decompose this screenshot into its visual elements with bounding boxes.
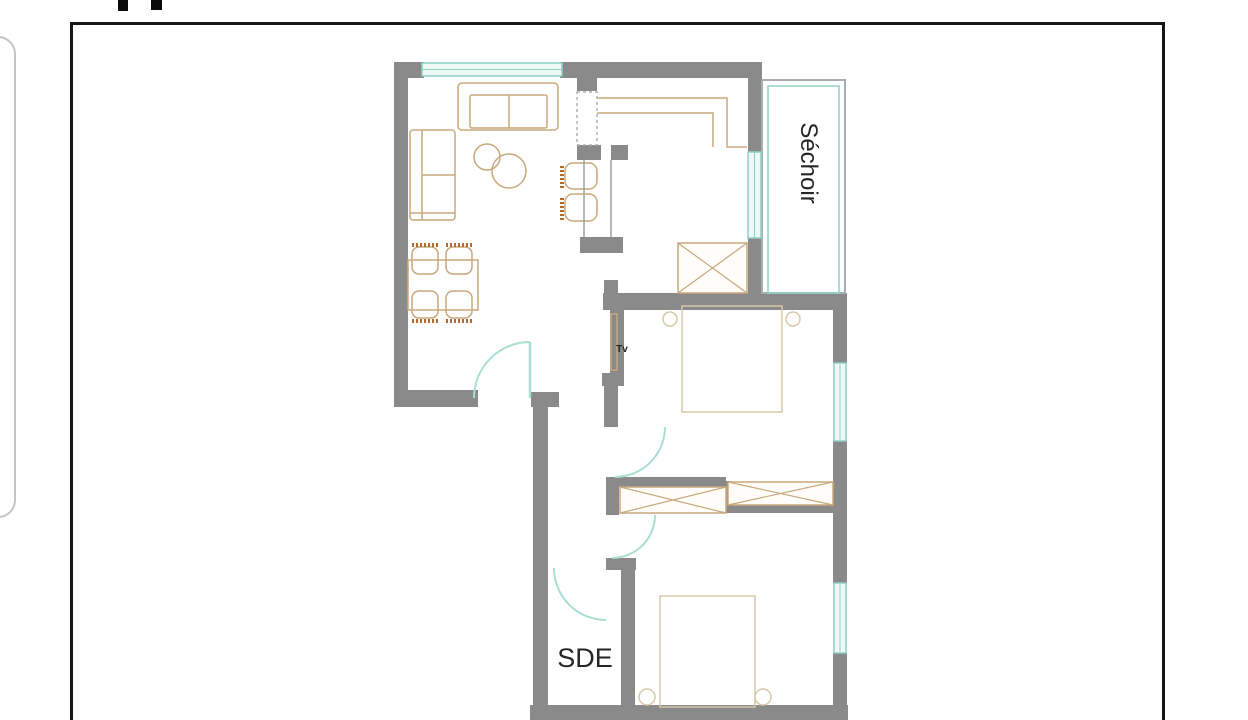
- entry-side-block: [531, 392, 559, 407]
- kitchen-stub-top: [577, 78, 597, 91]
- room-label-sde: SDE: [557, 643, 613, 673]
- corridor-wall-lower: [604, 386, 618, 427]
- bed-2: [660, 596, 755, 707]
- kitchen-block-right: [611, 145, 628, 160]
- right-wall-b: [833, 441, 847, 583]
- room-label-sechoir: Séchoir: [795, 122, 822, 203]
- living-bottom-wall: [398, 390, 478, 407]
- floorplan-svg[interactable]: SéchoirSDETv: [0, 0, 1248, 720]
- bedside-lamp: [663, 312, 677, 326]
- top-left-corner: [394, 62, 424, 78]
- bedroom2-door-arc: [612, 515, 655, 558]
- dining-table: [408, 260, 478, 310]
- closet-top-wall: [618, 477, 726, 487]
- tv-label: Tv: [616, 344, 628, 355]
- bar-stool: [565, 163, 597, 189]
- bedroom1-door-arc: [615, 427, 665, 477]
- right-wall-a: [833, 293, 847, 363]
- coffee-table: [492, 154, 526, 188]
- bar-stool: [565, 194, 597, 221]
- kitchen-tall-cabinet: [577, 92, 597, 145]
- living-left-wall: [394, 62, 408, 407]
- dining-chair: [412, 291, 438, 318]
- kitchen-counter-inner: [597, 113, 713, 147]
- corridor-wall-jog: [602, 373, 624, 386]
- top-wall: [560, 62, 762, 78]
- bar-end-block: [580, 237, 623, 253]
- bedside-lamp: [786, 312, 800, 326]
- bed-1: [682, 306, 782, 412]
- kitchen-right-wall-upper: [748, 62, 762, 152]
- kitchen-block-left: [577, 145, 601, 160]
- screenshot-stage: SéchoirSDETv: [0, 0, 1248, 720]
- kitchen-counter-outer: [597, 98, 747, 147]
- closet-left-stub: [606, 477, 619, 515]
- stub-above-bedroom1-wall: [604, 280, 618, 294]
- dining-chair: [446, 291, 472, 318]
- bedroom1-top-wall: [603, 293, 847, 310]
- left-wall-lower: [533, 407, 548, 720]
- sde-right-wall: [621, 568, 635, 720]
- sofa: [458, 83, 558, 130]
- sde-door-arc: [554, 568, 606, 620]
- bedside-lamp: [755, 689, 771, 705]
- kitchen-right-wall-lower: [748, 238, 762, 295]
- bedside-lamp: [639, 689, 655, 705]
- entry-door-arc: [474, 342, 530, 398]
- coffee-table: [474, 144, 500, 170]
